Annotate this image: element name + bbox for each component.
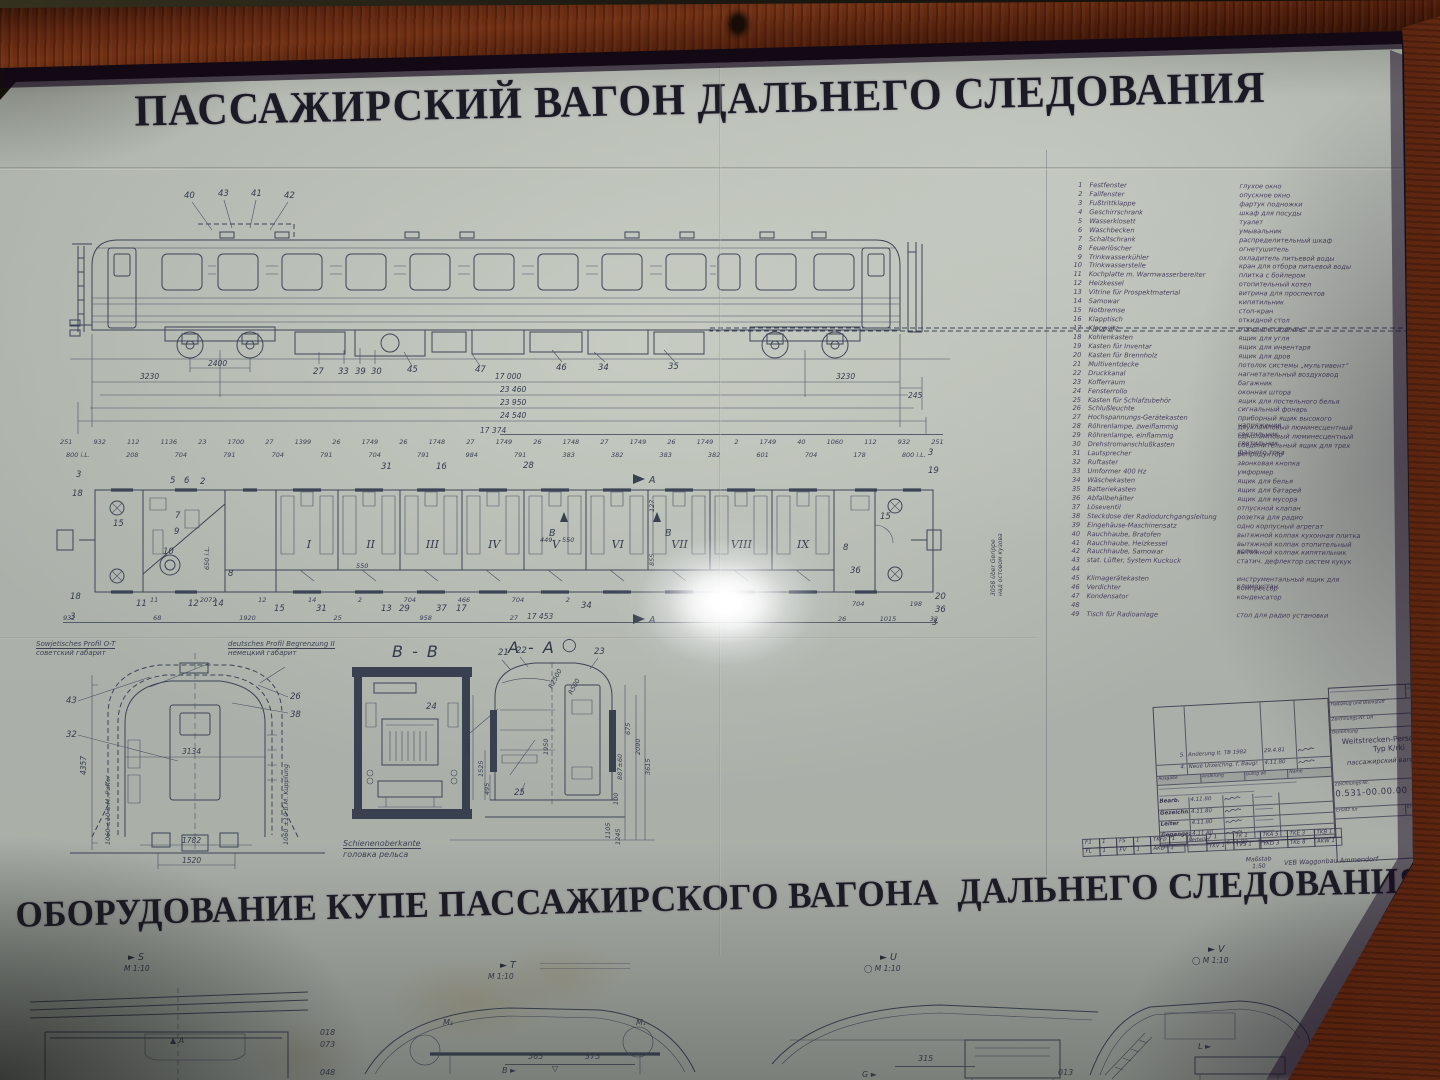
plan-dims-bottom2: 9326819202595827 (63, 614, 518, 622)
plan-overall-bottom: 17 453 (527, 612, 553, 621)
label-073: 073 (320, 1040, 335, 1049)
cut-mark-v: ► V (1208, 944, 1224, 955)
svg-text:42: 42 (284, 191, 295, 201)
aa-callout: 22 (516, 646, 527, 656)
cut-scale: M 1:10 (124, 964, 150, 973)
svg-text:26: 26 (290, 692, 301, 702)
svg-text:33: 33 (338, 367, 349, 377)
svg-text:46: 46 (556, 363, 567, 373)
berth-fragment-drawing (30, 988, 310, 1080)
svg-text:45: 45 (407, 365, 418, 375)
dim-565: 565 (528, 1052, 543, 1061)
legend-german: Tisch für Radioanlage (1086, 611, 1236, 621)
framed-poster-photo: ПАССАЖИРСКИЙ ВАГОН ДАЛЬНЕГО СЛЕДОВАНИЯ (0, 0, 1440, 1080)
cut-scale-v: ◯ M 1:10 (1192, 956, 1228, 965)
svg-text:4357: 4357 (79, 756, 88, 775)
svg-text:R2500: R2500 (547, 668, 564, 690)
legend-row: 49 Tisch für Radioanlage стол для радио … (1064, 611, 1366, 622)
svg-text:34: 34 (598, 363, 609, 373)
verteiler-label: Verteiler (1187, 835, 1208, 853)
parts-legend: 1 Festfenster глухое окно 2 Fallfenster … (1064, 182, 1369, 622)
svg-text:245: 245 (908, 391, 923, 400)
rail-note: Schienenoberkante головка рельса (343, 838, 421, 860)
cut-scale-u: ◯ M 1:10 (864, 964, 900, 973)
compartment-numerals: IIIIIIIVVVIVIIVIIIIX (278, 538, 834, 551)
arrow-a: ▲ A (170, 1036, 184, 1045)
svg-text:47: 47 (475, 365, 486, 375)
plan-dims-cluster2: 26101532 (838, 615, 938, 623)
svg-text:32: 32 (66, 730, 77, 740)
gauge-profile-section: 4357 3134 1782 1520 1060 ±10 b.M. Puffer… (30, 645, 360, 860)
svg-text:43: 43 (66, 696, 77, 706)
faint-note (540, 962, 630, 972)
svg-text:3230: 3230 (836, 372, 855, 381)
svg-text:675: 675 (624, 723, 632, 735)
cut-mark-s: ► S (128, 952, 144, 963)
aa-callout: 21 (498, 648, 509, 658)
svg-text:A: A (648, 615, 656, 626)
plan-dims-bottom1: 112072121427044667042 (150, 596, 570, 604)
detail-ref-m1: M₁ (636, 1018, 646, 1027)
poster-sheet: ПАССАЖИРСКИЙ ВАГОН ДАЛЬНЕГО СЛЕДОВАНИЯ (0, 0, 1440, 1080)
svg-text:2400: 2400 (208, 359, 227, 368)
svg-text:1105: 1105 (604, 822, 612, 839)
svg-text:3230: 3230 (140, 372, 159, 381)
aa-callout: 25 (514, 788, 525, 798)
label-048: 048 (320, 1068, 335, 1077)
section-bb-title: B - B (392, 642, 440, 661)
wood-knot (723, 6, 753, 42)
label-018: 018 (320, 1028, 335, 1037)
arrow-g: G ► (862, 1070, 877, 1079)
plan-callout: 3 (928, 448, 933, 458)
dim-375: 375 (585, 1052, 600, 1061)
svg-text:1060 ±10 b.M. Puffer: 1060 ±10 b.M. Puffer (104, 774, 112, 845)
svg-text:1060 ±10 b.M. Kupplung: 1060 ±10 b.M. Kupplung (282, 764, 290, 845)
svg-text:23 460: 23 460 (500, 385, 526, 394)
svg-text:35: 35 (668, 362, 679, 372)
svg-text:1950: 1950 (542, 738, 550, 755)
arrow-l: L ► (1198, 1042, 1211, 1051)
svg-text:17 000: 17 000 (495, 372, 521, 381)
svg-text:100: 100 (612, 793, 620, 805)
svg-text:1525: 1525 (477, 760, 485, 777)
section-aa-symbol: ◯ (562, 638, 579, 653)
svg-text:27: 27 (313, 367, 324, 377)
svg-text:41: 41 (251, 189, 262, 199)
aa-callout: 23 (594, 647, 605, 657)
svg-text:3134: 3134 (182, 747, 201, 756)
plan-right-note: 3058 über Gerippe над остовом кузова (990, 466, 1004, 596)
side-elevation-drawing: 40 43 41 42 27 33 39 30 45 47 46 34 35 2… (70, 182, 950, 437)
svg-text:2562: 2562 (464, 738, 472, 755)
svg-text:R500: R500 (567, 677, 582, 696)
section-bb-callout: 24 (426, 702, 437, 712)
ceiling-fragment-2 (770, 1000, 1100, 1080)
svg-text:40: 40 (184, 191, 195, 201)
detail-ref-m1: M₁ (443, 1018, 453, 1027)
title-block-left: 5. Änderung lt. TB 1982 29.4.81 4. Neue … (1153, 698, 1336, 847)
cut-mark-u: ► U (880, 952, 897, 963)
vertical-fold (719, 55, 721, 955)
sheet-join-line (1046, 150, 1047, 875)
svg-text:1782: 1782 (182, 836, 201, 845)
roof-vents (220, 232, 826, 238)
section-aa-drawing: 2562 1525 495 675 2090 887±60 100 3615 1… (440, 655, 665, 855)
horizontal-crease-2 (0, 637, 1037, 639)
svg-text:43: 43 (218, 189, 229, 199)
legend-russian: стол для радио установки (1236, 612, 1366, 622)
datum-mark: ▽ (552, 1064, 558, 1073)
plan-dims-top: 2519321121136231700271399261749261748271… (60, 438, 944, 446)
window-row (162, 254, 854, 290)
svg-text:3615: 3615 (644, 758, 652, 775)
svg-text:887±60: 887±60 (616, 754, 624, 780)
legend-number: 49 (1064, 611, 1079, 620)
svg-text:1245: 1245 (614, 828, 622, 845)
plan-dims-cluster1: 704198 (852, 600, 922, 608)
label-013: 013 (1058, 1068, 1073, 1077)
plan-dims-sub: 800 i.L.20870479170479170479198479138338… (66, 451, 926, 459)
svg-text:38: 38 (290, 710, 301, 720)
svg-text:2090: 2090 (634, 738, 642, 755)
ceiling-fragment-1 (360, 1002, 700, 1080)
svg-text:24 540: 24 540 (500, 411, 526, 420)
svg-text:30: 30 (371, 367, 382, 377)
arrow-b: B ► (502, 1066, 516, 1075)
svg-text:23 950: 23 950 (500, 398, 526, 407)
svg-text:39: 39 (355, 367, 366, 377)
svg-text:A: A (648, 475, 656, 486)
dim-315: 315 (918, 1054, 933, 1063)
cut-mark-t: ► T (500, 960, 516, 971)
svg-text:1520: 1520 (182, 856, 201, 865)
svg-text:495: 495 (483, 783, 491, 795)
